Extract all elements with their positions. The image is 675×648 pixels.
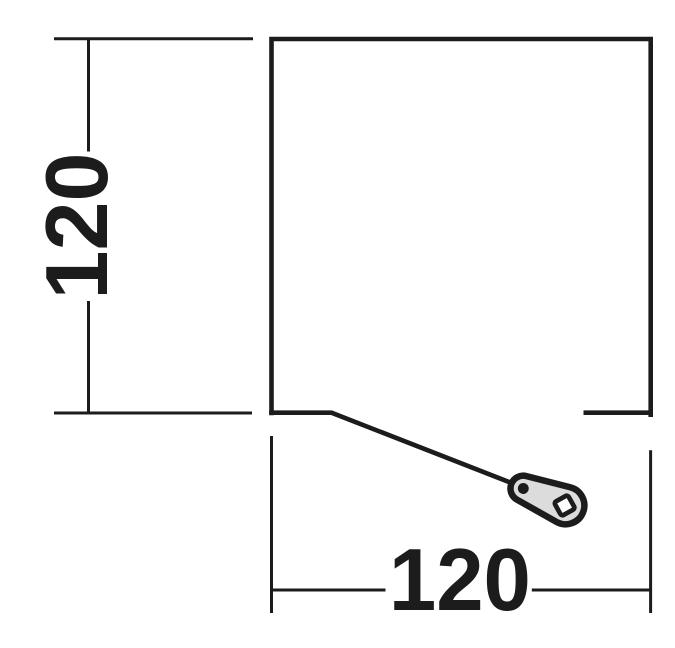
svg-text:120: 120 (27, 153, 126, 300)
svg-text:120: 120 (389, 530, 531, 629)
